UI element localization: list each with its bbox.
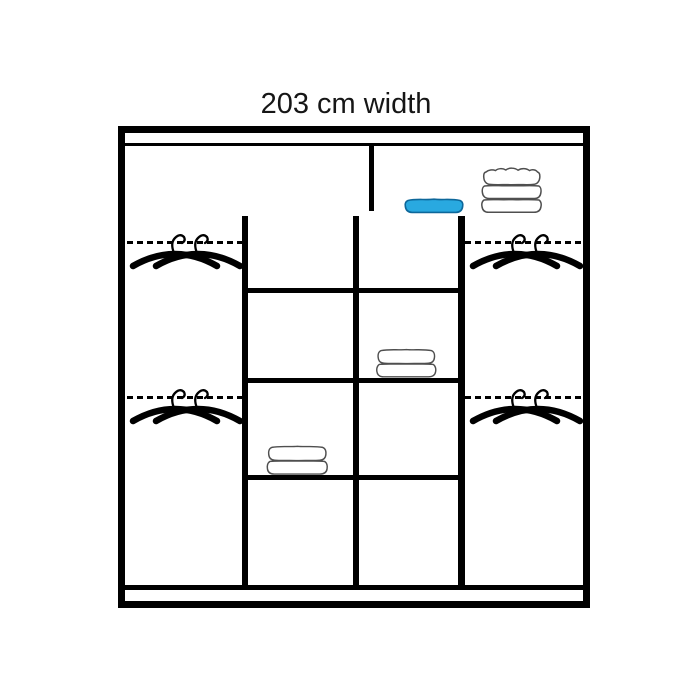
hangers-icon — [131, 387, 243, 427]
folded-towel-icon — [375, 347, 438, 379]
top-shelf-divider — [369, 146, 374, 211]
wardrobe-frame — [118, 126, 590, 608]
top-panel-strip — [125, 133, 583, 143]
bottom-panel-strip — [125, 590, 583, 601]
divider-right — [458, 216, 465, 585]
folded-towel-icon — [265, 444, 330, 476]
hangers-icon — [131, 232, 243, 272]
folded-towel-stack-icon — [480, 165, 543, 213]
width-label: 203 cm width — [0, 88, 692, 121]
hangers-icon — [471, 232, 583, 272]
top-shelf-compartment-left — [125, 146, 369, 211]
folded-blue-cloth-icon — [404, 196, 464, 214]
shelf-1 — [242, 288, 465, 293]
divider-middle — [353, 216, 359, 585]
hangers-icon — [471, 387, 583, 427]
